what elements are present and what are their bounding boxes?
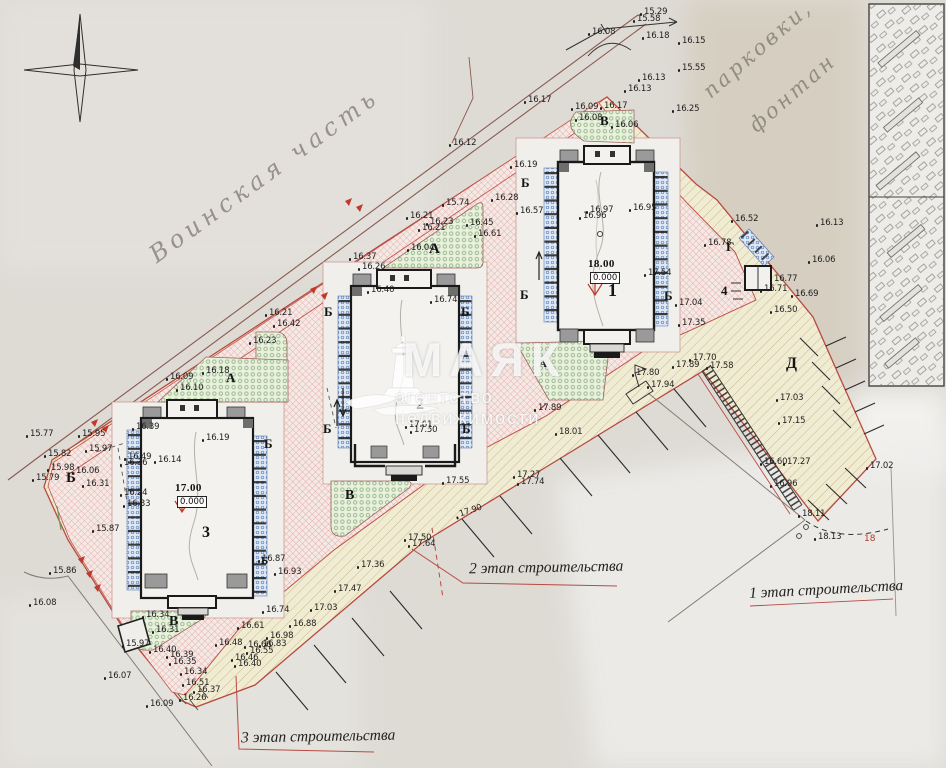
stage-2-label: 2 этап строительства <box>469 558 624 579</box>
zone-letter: Г <box>726 240 734 253</box>
spot-elevation: 16.09 <box>575 102 598 112</box>
spot-elevation: 17.50 <box>414 425 437 435</box>
spot-elevation: 16.95 <box>633 203 656 213</box>
spot-elevation: 16.34 <box>184 667 207 677</box>
spot-elevation: 17.15 <box>782 416 805 426</box>
spot-elevation: 17.03 <box>314 603 337 613</box>
zone-letter: В <box>600 114 609 127</box>
spot-elevation: 16.13 <box>820 218 843 228</box>
spot-elevation: 16.08 <box>33 598 56 608</box>
spot-elevation: 17.35 <box>682 318 705 328</box>
spot-elevation: 16.21 <box>269 308 292 318</box>
spot-elevation: 16.96 <box>774 479 797 489</box>
spot-elevation: 15.77 <box>30 429 53 439</box>
spot-elevation: 16.26 <box>362 262 385 272</box>
zone-letter: Б <box>261 556 268 567</box>
spot-elevation: 16.25 <box>676 104 699 114</box>
spot-elevation: 15.58 <box>637 14 660 24</box>
spot-elevation: 16.08 <box>592 27 615 37</box>
spot-elevation: 16.57 <box>520 206 543 216</box>
spot-elevation: 16.07 <box>108 671 131 681</box>
spot-elevation: 15.55 <box>682 63 705 73</box>
spot-elevation: 17.03 <box>780 393 803 403</box>
spot-elevation: 18.13 <box>818 532 841 542</box>
spot-elevation: 16.36 <box>124 458 147 468</box>
spot-elevation: 16.13 <box>628 84 651 94</box>
zone-letter: А <box>539 359 547 370</box>
spot-elevation: 16.06 <box>76 466 99 476</box>
zone-letter: Б <box>264 437 273 450</box>
spot-elevation: 16.69 <box>795 289 818 299</box>
zone-letter: Б <box>664 289 673 302</box>
spot-elevation: 15.97 <box>126 639 149 649</box>
spot-elevation: 16.96 <box>583 211 606 221</box>
spot-elevation: 15.82 <box>48 449 71 459</box>
spot-elevation: 16.35 <box>173 657 196 667</box>
spot-elevation: 16.28 <box>495 193 518 203</box>
inset-map <box>869 4 944 386</box>
spot-elevation: 16.48 <box>219 638 242 648</box>
spot-elevation: 16.23 <box>253 336 276 346</box>
spot-elevation: 16.24 <box>124 488 147 498</box>
building-4-number: 4 <box>721 284 728 297</box>
spot-elevation: 16.40 <box>371 285 394 295</box>
zone-letter: Б <box>520 288 529 301</box>
plan-drawing <box>0 0 946 768</box>
building-3-number: 3 <box>202 525 210 541</box>
building-1-number: 1 <box>608 281 617 299</box>
spot-elevation: 16.10 <box>180 383 203 393</box>
spot-elevation: 16.21 <box>422 223 445 233</box>
spot-elevation: 16.93 <box>278 567 301 577</box>
spot-elevation: 16.42 <box>277 319 300 329</box>
spot-elevation: 17.27 <box>787 457 810 467</box>
zone-letter: Б <box>66 471 76 486</box>
spot-elevation: 17.89 <box>676 360 699 370</box>
spot-elevation: 17.89 <box>538 403 561 413</box>
spot-elevation: 15.87 <box>96 524 119 534</box>
zone-letter: А <box>429 242 440 257</box>
spot-elevation: 16.26 <box>183 693 206 703</box>
spot-elevation: 16.71 <box>764 284 787 294</box>
spot-elevation: 15.74 <box>446 198 469 208</box>
site-plan-photo: 15.2915.5816.0816.1816.1515.5516.1316.13… <box>0 0 946 768</box>
stage-3-label: 3 этап строительства <box>241 727 396 748</box>
spot-elevation: 16.33 <box>127 499 150 509</box>
spot-elevation: 17.80 <box>636 368 659 378</box>
spot-elevation: 15.97 <box>89 444 112 454</box>
zone-letter: В <box>169 615 178 629</box>
spot-elevation: 15.79 <box>36 473 59 483</box>
spot-elevation: 17.64 <box>412 539 435 549</box>
spot-elevation: 18.01 <box>559 427 582 437</box>
spot-elevation: 16.09 <box>170 372 193 382</box>
spot-elevation: 17.02 <box>870 461 893 471</box>
parking-count: 18 <box>864 534 875 544</box>
zone-letter: Б <box>521 176 530 189</box>
spot-elevation: 16.88 <box>293 619 316 629</box>
spot-elevation: 17.47 <box>338 584 361 594</box>
spot-elevation: 16.08 <box>579 113 602 123</box>
spot-elevation: 16.19 <box>514 160 537 170</box>
spot-elevation: 16.14 <box>158 455 181 465</box>
zone-letter: А <box>226 371 235 384</box>
spot-elevation: 16.74 <box>434 295 457 305</box>
zone-letter: Б <box>462 422 471 435</box>
spot-elevation: 16.13 <box>642 73 665 83</box>
spot-elevation: 16.19 <box>206 433 229 443</box>
spot-elevation: 17.74 <box>521 477 544 487</box>
spot-elevation: 16.40 <box>238 659 261 669</box>
spot-elevation: 17.94 <box>651 380 674 390</box>
building-3-datum: 0.000 <box>177 496 207 508</box>
building-2-number: 2 <box>416 397 424 413</box>
spot-elevation: 16.60 <box>764 457 787 467</box>
spot-elevation: 16.61 <box>478 229 501 239</box>
spot-elevation: 16.77 <box>774 274 797 284</box>
spot-elevation: 16.52 <box>735 214 758 224</box>
spot-elevation: 17.36 <box>361 560 384 570</box>
spot-elevation: 17.55 <box>446 476 469 486</box>
spot-elevation: 17.04 <box>679 298 702 308</box>
spot-elevation: 15.95 <box>82 429 105 439</box>
spot-elevation: 16.15 <box>682 36 705 46</box>
zone-letter: В <box>345 489 354 503</box>
spot-elevation: 16.17 <box>528 95 551 105</box>
zone-letter: Б <box>323 422 332 435</box>
spot-elevation: 16.18 <box>646 31 669 41</box>
building-3-elevation: 17.00 <box>175 482 202 494</box>
building-1 <box>544 146 668 358</box>
spot-elevation: 16.31 <box>86 479 109 489</box>
spot-elevation: 16.06 <box>615 120 638 130</box>
spot-elevation: 16.37 <box>353 252 376 262</box>
spot-elevation: 17.54 <box>648 268 671 278</box>
spot-elevation: 16.45 <box>470 218 493 228</box>
spot-elevation: 15.86 <box>53 566 76 576</box>
zone-letter: Б <box>461 305 470 318</box>
spot-elevation: 16.12 <box>453 138 476 148</box>
spot-elevation: 16.17 <box>604 101 627 111</box>
zone-letter: Б <box>324 305 333 318</box>
spot-elevation: 16.09 <box>150 699 173 709</box>
spot-elevation: 16.61 <box>241 621 264 631</box>
spot-elevation: 16.34 <box>146 610 169 620</box>
spot-elevation: 16.39 <box>136 422 159 432</box>
spot-elevation: 17.58 <box>710 361 733 371</box>
building-1-elevation: 18.00 <box>588 258 615 270</box>
building-3 <box>127 400 267 620</box>
spot-elevation: 16.50 <box>774 305 797 315</box>
spot-elevation: 18.11 <box>802 509 825 519</box>
spot-elevation: 16.74 <box>266 605 289 615</box>
zone-letter: Д <box>786 356 797 372</box>
spot-elevation: 16.06 <box>812 255 835 265</box>
